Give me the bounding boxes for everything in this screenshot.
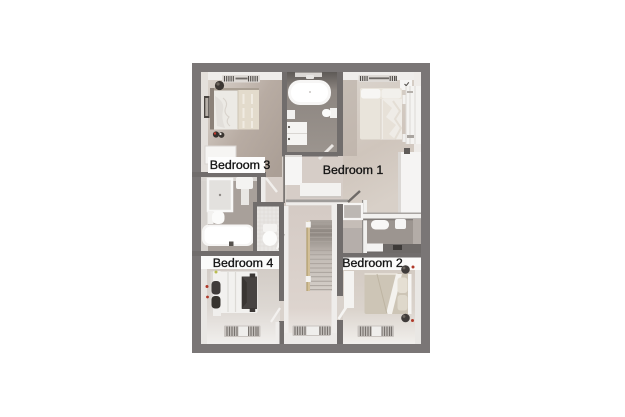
svg-text:Bedroom 1: Bedroom 1: [323, 163, 384, 177]
svg-text:Bedroom 4: Bedroom 4: [213, 256, 274, 270]
svg-text:Bedroom 3: Bedroom 3: [210, 158, 271, 172]
svg-text:Bedroom 2: Bedroom 2: [342, 256, 403, 270]
